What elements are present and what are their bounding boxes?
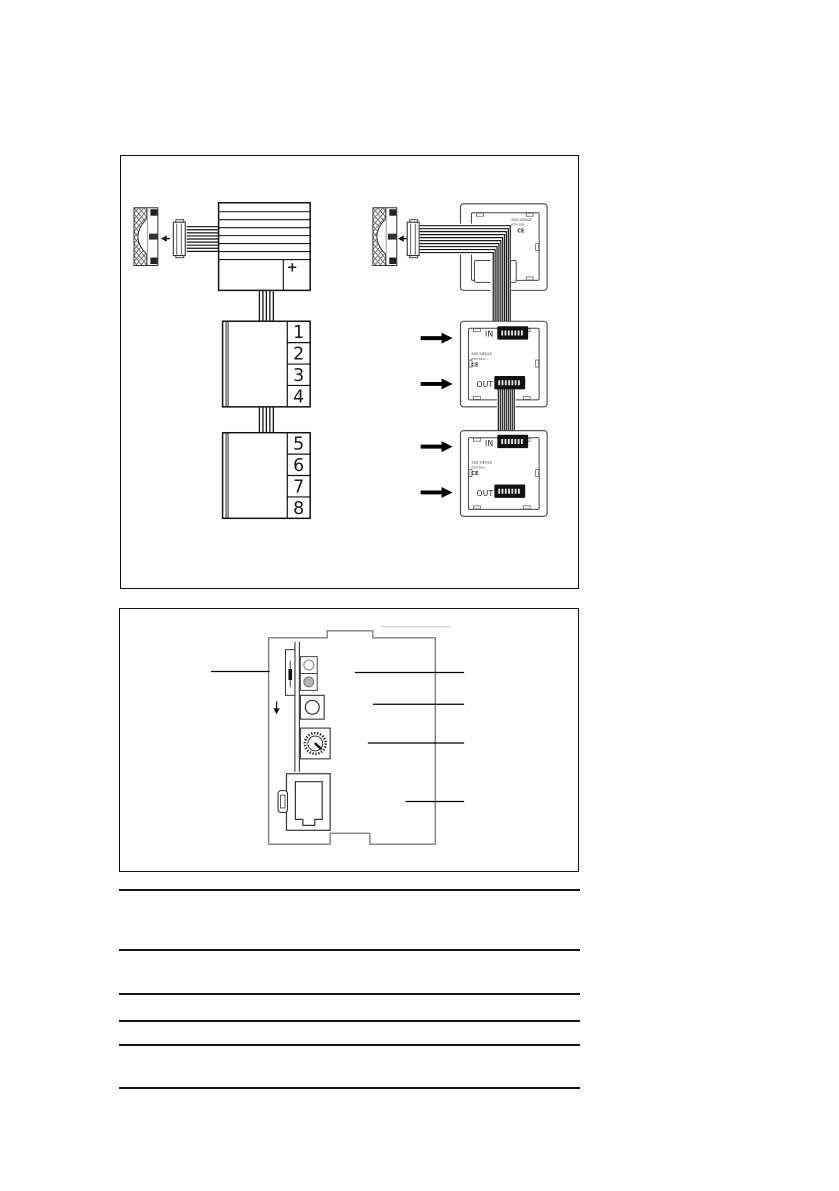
figure1-canvas: + 1 2 3 4 5 6 7 8: [121, 156, 578, 588]
table-rule-1: [119, 889, 580, 891]
figure1-wiring-diagram: + 1 2 3 4 5 6 7 8: [120, 155, 579, 589]
plus-terminal-mark: +: [287, 260, 298, 275]
terminal-number: 2: [293, 345, 304, 365]
terminal-number: 8: [293, 499, 304, 519]
in-connector-module-2: [497, 326, 528, 339]
led-indicator-top: [300, 657, 317, 674]
table-rule-3: [119, 993, 580, 995]
ribbon-cable-left: [187, 227, 219, 252]
out-label: OUT: [477, 380, 494, 389]
push-button: [300, 695, 324, 719]
terminal-number: 6: [293, 456, 304, 476]
ce-mark: CE: [471, 363, 479, 369]
module-print-type: BTM 650-...: [471, 357, 488, 361]
insert-direction-arrow-icon: [398, 235, 407, 241]
terminal-number: 1: [293, 323, 304, 343]
pointer-arrow-icon: [421, 333, 453, 344]
pointer-arrow-icon: [421, 378, 453, 389]
out-connector-module-3: [494, 484, 525, 497]
figure2-canvas: [120, 609, 578, 871]
terminal-block-1-4: 1 2 3 4: [223, 321, 311, 407]
terminal-number: 4: [293, 387, 304, 407]
module-print-type: BTM 650-...: [471, 465, 488, 469]
module-print-brand: SSS SIEDLE: [471, 352, 492, 356]
led-indicator-bottom: [300, 674, 317, 691]
table-rule-6: [119, 1087, 580, 1089]
out-connector-module-2: [494, 376, 525, 389]
table-rule-5: [119, 1044, 580, 1046]
in-label: IN: [485, 439, 493, 448]
terminal-number: 5: [293, 435, 304, 455]
terminal-number: 7: [293, 477, 304, 497]
faint-line: [381, 626, 450, 628]
module-print-brand: SSS SIEDLE: [471, 461, 492, 465]
module-print-brand: SSS SIEDLE: [511, 218, 532, 222]
bus-cable-1: [259, 290, 273, 321]
rotary-switch-icon: [300, 728, 330, 759]
out-label: OUT: [477, 489, 494, 498]
table-rule-4: [119, 1020, 580, 1022]
table-rule-2: [119, 949, 580, 951]
figure2-device-diagram: [119, 608, 579, 872]
in-label: IN: [485, 330, 493, 339]
terminal-block-5-8: 5 6 7 8: [223, 433, 311, 519]
flush-mount-box-icon: [373, 208, 397, 266]
pointer-arrow-icon: [421, 441, 453, 452]
module-print-type: BTM 650-...: [511, 223, 528, 227]
terminal-number: 3: [293, 366, 304, 386]
ce-mark: CE: [471, 471, 479, 477]
insert-direction-arrow-icon: [161, 235, 170, 241]
ce-mark: CE: [517, 229, 525, 235]
ribbon-plug-connector: [407, 220, 419, 258]
in-connector-module-3: [497, 435, 528, 448]
slider-switch: [285, 650, 294, 696]
pointer-arrow-icon: [421, 487, 453, 498]
flush-mount-box-icon: [134, 208, 158, 266]
ribbon-cable-module2-to-module3: [497, 389, 516, 437]
ribbon-plug-connector: [173, 220, 185, 258]
device-rear-module: +: [219, 203, 311, 291]
bus-cable-2: [259, 407, 273, 433]
